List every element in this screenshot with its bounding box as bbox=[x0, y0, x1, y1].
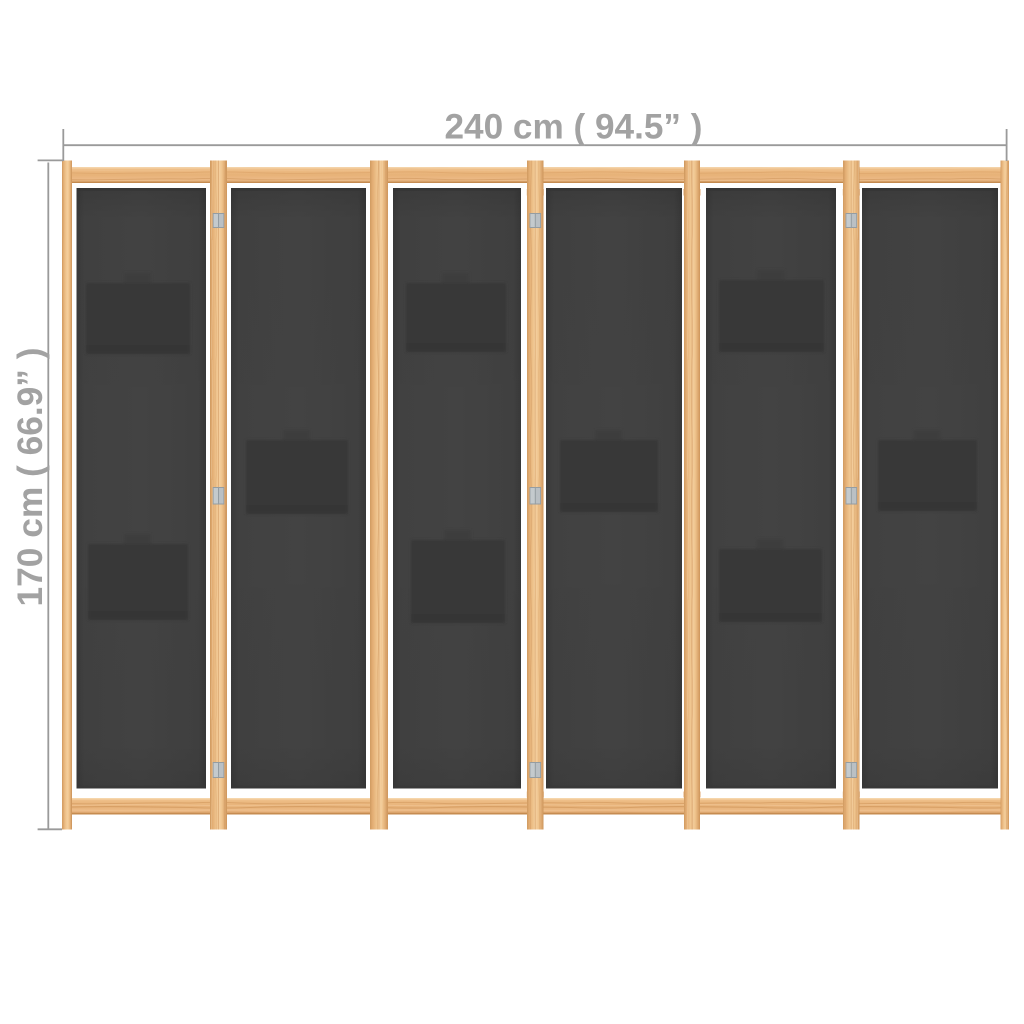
svg-text:240 cm ( 94.5” ): 240 cm ( 94.5” ) bbox=[445, 108, 703, 147]
svg-text:170 cm ( 66.9” ): 170 cm ( 66.9” ) bbox=[11, 348, 50, 607]
